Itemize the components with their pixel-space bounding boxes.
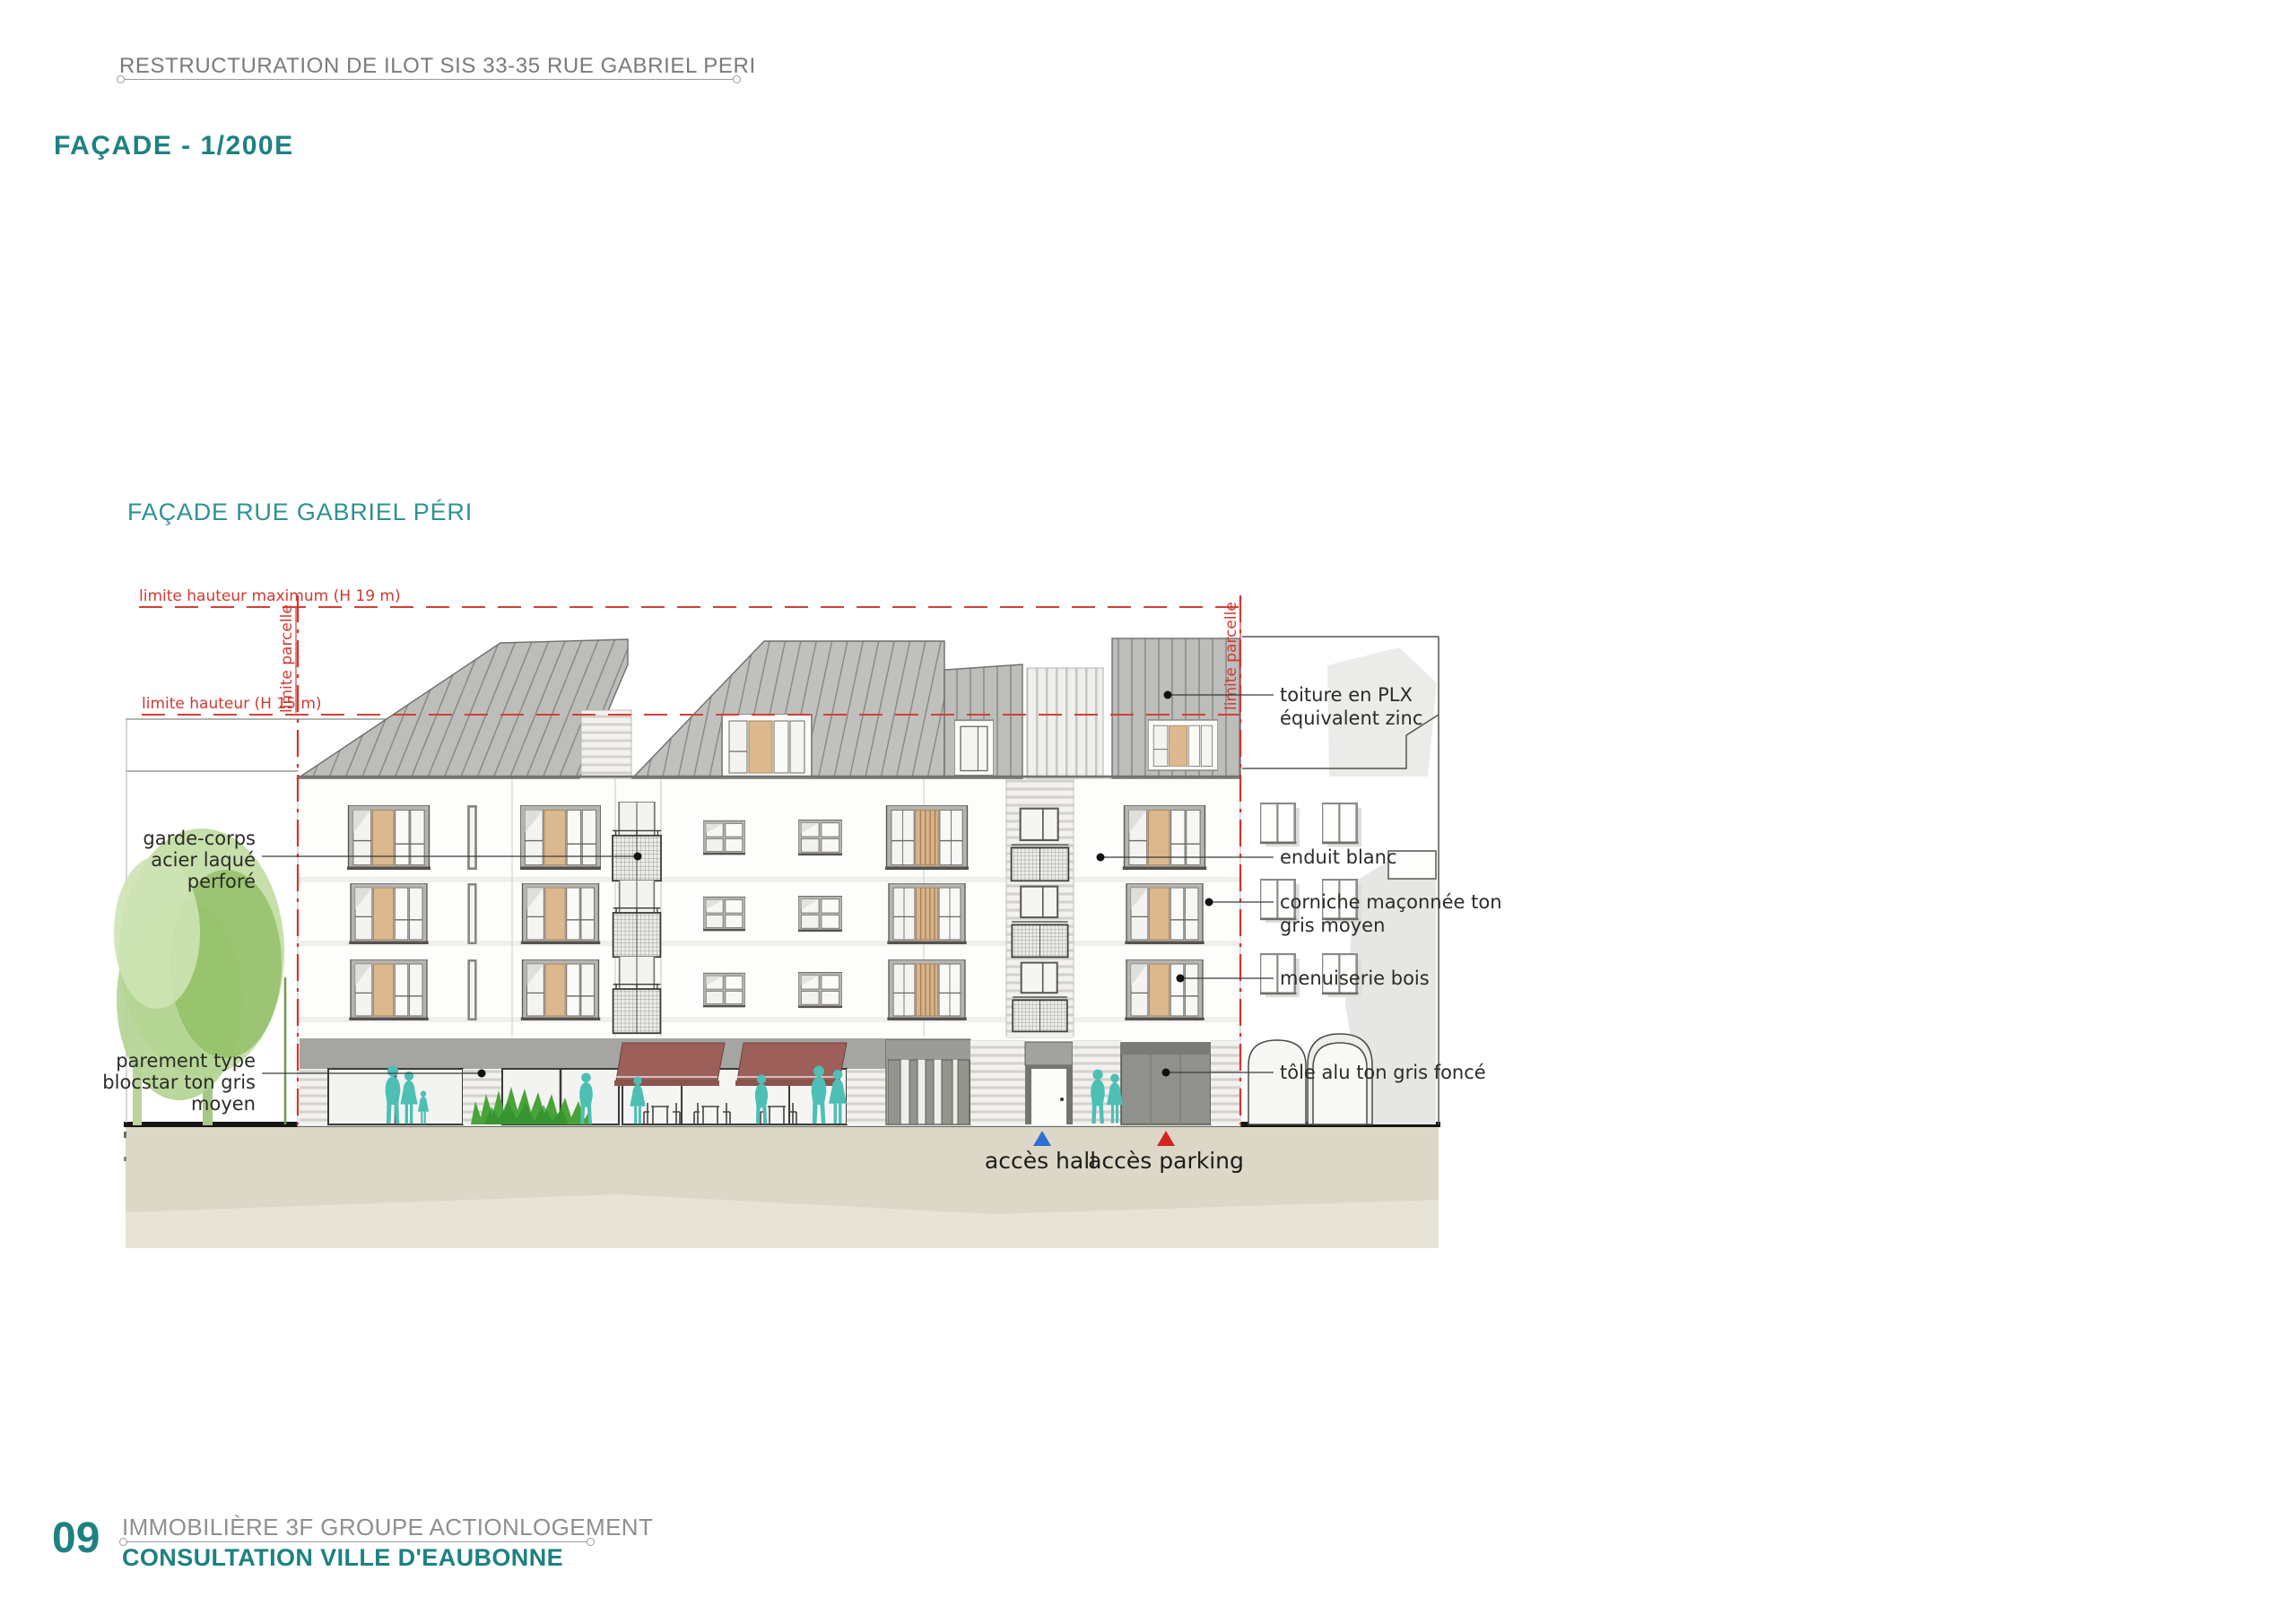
wood-slat-window [887,959,966,1021]
roof-left-slope [298,639,628,778]
hall-access-label: accès hall [985,1148,1096,1174]
annotation-tole: tôle alu ton gris foncé [1280,1062,1486,1083]
street-ground [124,1122,1440,1248]
wood-panel-window [1123,805,1207,871]
neighbor-window [1320,803,1361,846]
footer-consultation: CONSULTATION VILLE D'EAUBONNE [122,1544,563,1572]
rule-end-circle [587,1538,595,1546]
wood-panel-window [518,805,603,871]
awning [735,1043,847,1086]
wood-panel-window [1125,959,1204,1021]
footer-underline [122,1541,592,1542]
pane-window [797,820,843,855]
awning [614,1043,725,1086]
slit-window [467,959,476,1020]
pane-window [702,973,746,1007]
slit-window [467,883,476,944]
svg-text:toiture en PLX: toiture en PLX [1280,684,1413,706]
footer-organisation: IMMOBILIÈRE 3F GROUPE ACTIONLOGEMENT [122,1514,653,1541]
parcel-limit-left-label: limite parcelle [278,604,296,713]
neighbor-window [1258,803,1300,846]
svg-text:corniche maçonnée ton: corniche maçonnée ton [1280,891,1502,913]
annotation-parement: parement type blocstar ton gris moyen [102,1050,256,1115]
svg-text:gris moyen: gris moyen [1280,915,1385,936]
wood-panel-window [521,883,600,945]
height-limit-19m-label: limite hauteur maximum (H 19 m) [139,587,401,605]
roof-notch-panel [1027,668,1103,778]
wood-slat-window [885,805,970,871]
parking-access-label: accès parking [1088,1148,1244,1174]
balcony-with-railing [613,956,661,1033]
parcel-limit-left: limite parcelle [278,595,298,1124]
glazed-entrance [886,1040,970,1124]
parking-door [1121,1043,1211,1124]
balcony-with-railing [613,880,661,957]
height-limit-19m-line: limite hauteur maximum (H 19 m) [139,587,1240,607]
hall-door [1025,1042,1073,1124]
svg-text:acier laqué: acier laqué [151,849,256,871]
wood-slat-window [887,883,966,945]
dormer-window [954,720,994,776]
wood-panel-window [521,959,600,1021]
annotation-enduit: enduit blanc [1280,846,1397,868]
page-number: 09 [52,1514,100,1563]
pane-window [702,897,746,931]
svg-text:perforé: perforé [187,871,256,892]
svg-text:blocstar ton gris: blocstar ton gris [102,1072,256,1093]
pane-window [702,820,746,855]
svg-text:garde-corps: garde-corps [143,828,256,849]
pane-window [797,896,843,932]
wood-panel-window [347,805,431,871]
wood-panel-window [1125,883,1204,945]
slit-window [467,805,477,870]
roofs [298,638,1240,778]
drawing-sheet: RESTRUCTURATION DE ILOT SIS 33-35 RUE GA… [0,0,2296,1623]
wood-panel-window [349,959,428,1021]
dormer-window [1148,720,1218,770]
balcony-with-railing [613,802,661,881]
wood-panel-window [349,883,428,945]
svg-text:équivalent zinc: équivalent zinc [1280,707,1422,729]
svg-text:moyen: moyen [191,1093,256,1115]
dormer-window [722,714,812,778]
parcel-limit-right-label: limite parcelle [1222,602,1240,710]
annotation-menuiserie: menuiserie bois [1280,968,1430,989]
svg-text:parement type: parement type [116,1050,256,1072]
pane-window [797,972,843,1008]
elevation-drawing: limite hauteur maximum (H 19 m) limite h… [0,0,2296,1623]
